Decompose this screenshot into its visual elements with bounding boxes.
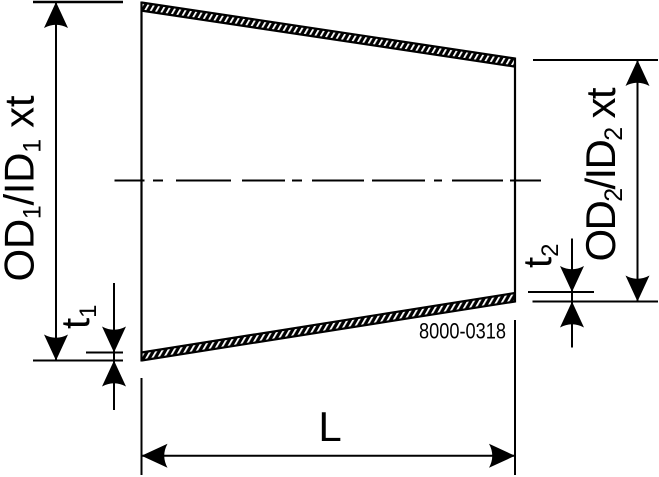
svg-text:8000-0318: 8000-0318 [419, 319, 506, 344]
svg-text:L: L [318, 403, 341, 450]
svg-text:OD1/ID1 xt: OD1/ID1 xt [0, 95, 47, 281]
svg-text:OD2/ID2 xt: OD2/ID2 xt [577, 87, 628, 261]
